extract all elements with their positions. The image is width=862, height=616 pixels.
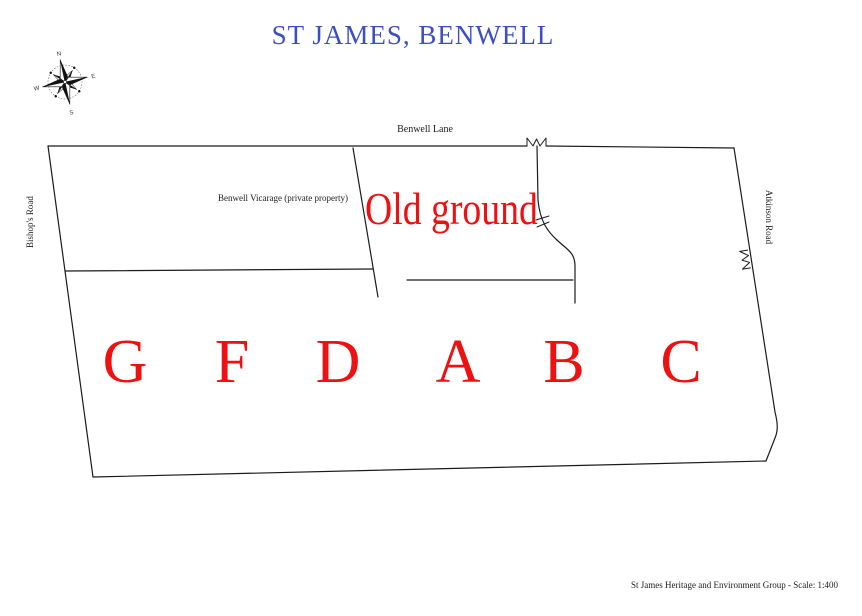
section-label-a: A [416, 328, 500, 396]
section-label-b: B [522, 328, 606, 396]
footer-attribution: St James Heritage and Environment Group … [631, 580, 838, 590]
section-label-c: C [639, 328, 723, 396]
boundary-bottom-line [93, 461, 766, 477]
gate-top-icon [527, 138, 546, 146]
road-label-benwell-lane: Benwell Lane [375, 124, 475, 135]
site-plan-drawing [0, 0, 862, 616]
section-label-f: F [190, 328, 274, 396]
road-label-bishops-road: Bishop's Road [25, 172, 35, 272]
section-label-d: D [296, 328, 380, 396]
gate-right-icon [740, 250, 751, 269]
section-label-g: G [83, 328, 167, 396]
vicarage-label: Benwell Vicarage (private property) [183, 193, 383, 203]
old-ground-label: Old ground [365, 184, 529, 235]
vicarage-bottom-line [65, 269, 373, 271]
boundary-top-line [48, 146, 734, 148]
road-label-atkinson-road: Atkinson Road [764, 167, 774, 267]
boundary-left-line [48, 146, 93, 477]
